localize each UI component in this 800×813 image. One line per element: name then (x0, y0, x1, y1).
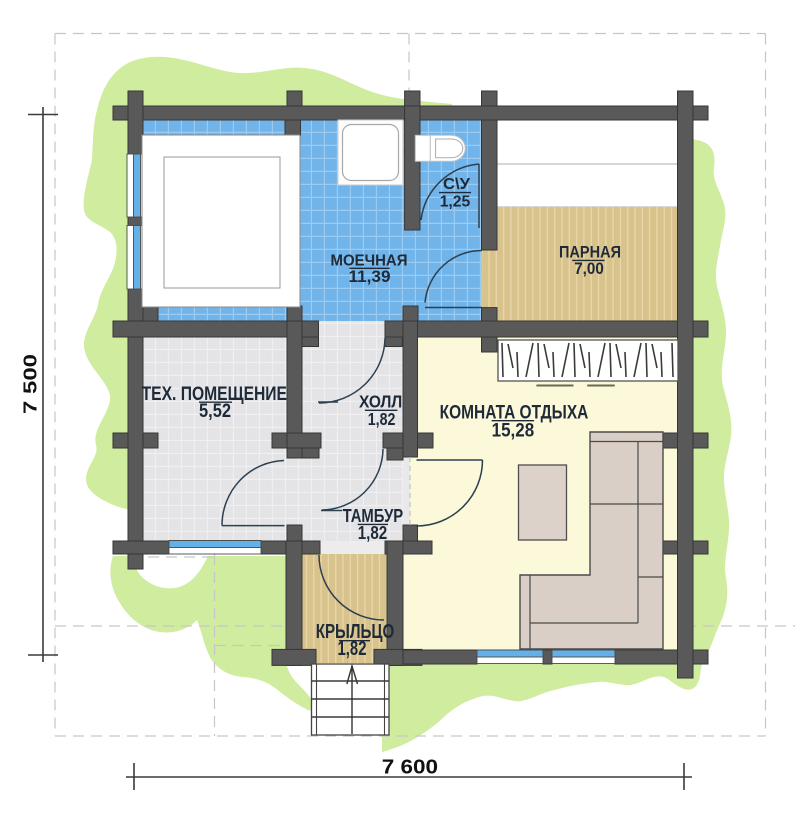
svg-text:7 600: 7 600 (382, 757, 438, 779)
svg-text:7 500: 7 500 (19, 354, 40, 414)
svg-text:5,52: 5,52 (199, 401, 231, 422)
svg-text:1,82: 1,82 (338, 638, 367, 660)
svg-text:11,39: 11,39 (349, 267, 391, 286)
svg-text:15,28: 15,28 (492, 420, 535, 441)
svg-text:1,82: 1,82 (368, 409, 396, 429)
svg-text:С\У: С\У (443, 176, 470, 193)
svg-text:1,25: 1,25 (440, 193, 471, 210)
svg-text:7,00: 7,00 (574, 259, 604, 278)
svg-text:1,82: 1,82 (358, 523, 388, 543)
